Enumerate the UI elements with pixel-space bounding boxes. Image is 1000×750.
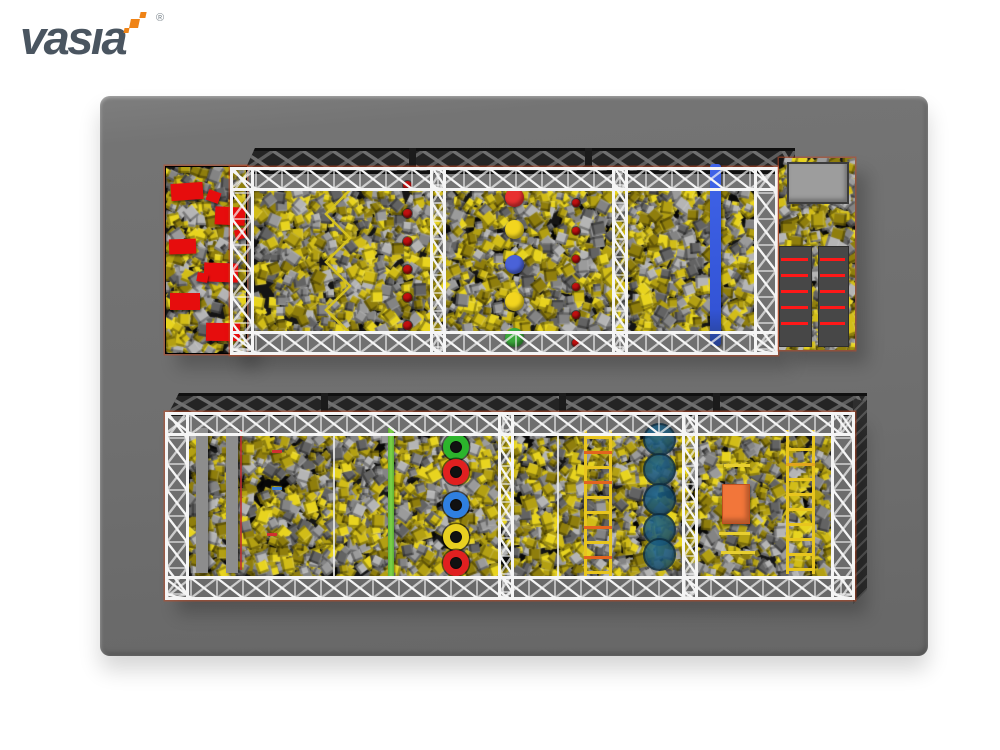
floor-panel [100, 96, 928, 656]
crash-mat [722, 484, 750, 524]
accent-bar [721, 551, 755, 554]
hanging-ring [443, 550, 469, 576]
ladder-rung [584, 496, 612, 499]
accent-bar [724, 464, 750, 467]
hanging-ring [443, 524, 469, 550]
product-render: vasıa ® [0, 0, 1000, 750]
foam-pit-structure-bottom [100, 96, 928, 656]
foam-marker [272, 450, 282, 453]
ladder-rung [584, 466, 612, 469]
truss-divider [682, 412, 698, 600]
ladder-rung [584, 526, 612, 529]
accent-bar [719, 532, 750, 535]
balance-beam [196, 428, 208, 573]
truss-frame [165, 412, 855, 600]
foam-marker [272, 487, 282, 490]
green-balance-beam [388, 428, 394, 578]
ladder-rung [584, 511, 612, 514]
ladder-rung [786, 553, 815, 556]
step-pod [643, 453, 676, 486]
beam-trim [240, 430, 242, 570]
hanging-ring [443, 434, 469, 460]
ladder-rung [786, 508, 815, 511]
hanging-ring [443, 492, 469, 518]
logo-accent-squares [124, 12, 148, 36]
truss-side-panel [853, 398, 867, 604]
ladder-rung [584, 481, 612, 484]
ladder-rung [584, 436, 612, 439]
ladder-rung [786, 463, 815, 466]
accent-square [129, 19, 140, 28]
truss-divider [498, 412, 514, 600]
step-pod [643, 483, 676, 516]
step-pod [643, 538, 676, 571]
ladder-rung [786, 493, 815, 496]
ladder-rung [786, 478, 815, 481]
foam-marker [267, 533, 277, 536]
ladder-rung [786, 523, 815, 526]
registered-trademark-symbol: ® [156, 12, 164, 24]
ladder-rung [584, 556, 612, 559]
ladder-rung [786, 448, 815, 451]
ladder-rung [786, 568, 815, 571]
vasia-logo: vasıa ® [20, 10, 190, 68]
ladder-rung [584, 541, 612, 544]
hanging-ring [443, 459, 469, 485]
ladder-rung [584, 451, 612, 454]
truss-right-post [831, 412, 855, 600]
cable-divider [557, 436, 559, 576]
ladder-rung [584, 571, 612, 574]
logo-wordmark: vasıa [20, 10, 125, 66]
accent-square [139, 12, 146, 18]
accent-square [123, 28, 129, 33]
truss-left-post [165, 412, 189, 600]
ladder-rung [786, 538, 815, 541]
balance-beam [226, 428, 238, 573]
cable-divider [333, 436, 335, 576]
